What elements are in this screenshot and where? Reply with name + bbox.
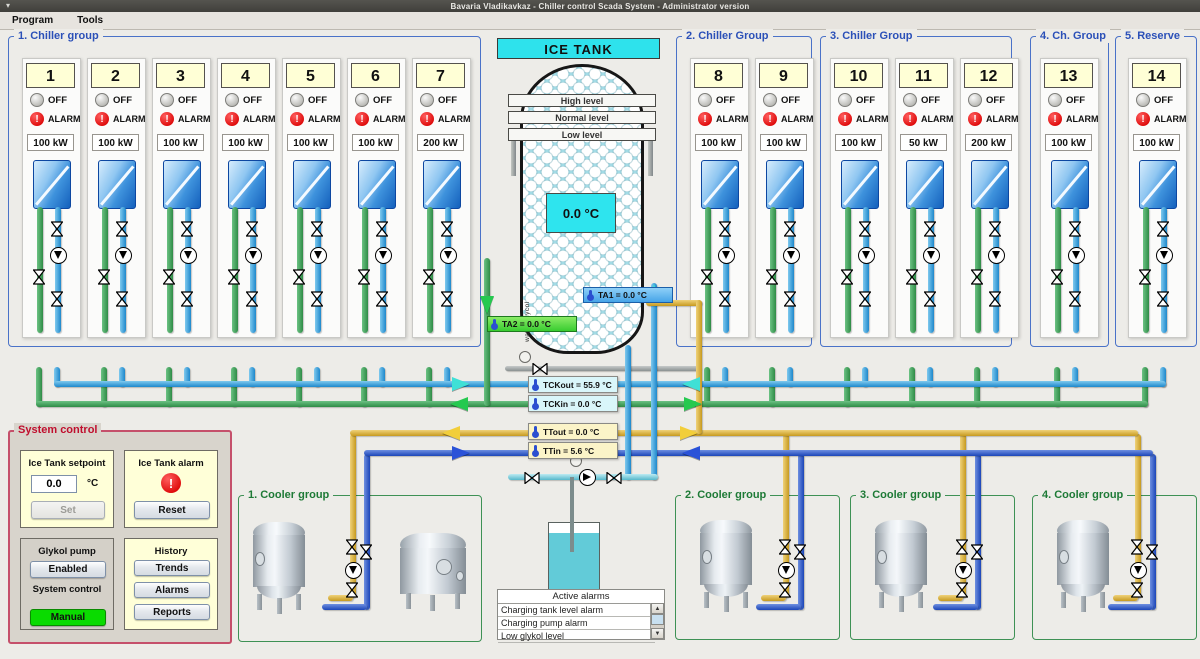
reports-button[interactable]: Reports <box>134 604 210 620</box>
pipe-segment <box>322 604 367 610</box>
sensor-ttout: TTout = 0.0 °C <box>528 423 618 440</box>
off-indicator[interactable] <box>160 93 174 107</box>
chiller-power: 50 kW <box>900 134 947 151</box>
chiller-alarm-row: !ALARM <box>225 112 276 126</box>
chiller-number[interactable]: 6 <box>351 63 400 88</box>
valve-icon <box>957 539 969 555</box>
valve-icon <box>785 221 797 237</box>
menu-bar: Program Tools <box>0 12 1200 30</box>
chiller-off-row: OFF <box>1136 93 1173 107</box>
pump-icon <box>955 562 972 579</box>
sensor-ta2-value: TA2 = 0.0 °C <box>502 319 551 329</box>
pump-icon <box>180 247 197 264</box>
pump-icon <box>1156 247 1173 264</box>
pipe-segment <box>933 604 978 610</box>
thermometer-icon <box>589 290 592 299</box>
pipe-segment <box>1150 454 1156 610</box>
off-indicator[interactable] <box>95 93 109 107</box>
flow-arrow-icon <box>452 446 470 460</box>
off-indicator[interactable] <box>225 93 239 107</box>
chiller-number[interactable]: 4 <box>221 63 270 88</box>
pump-rotor-icon <box>862 251 870 259</box>
menu-tools[interactable]: Tools <box>65 12 115 29</box>
chiller-unit-icon <box>1051 160 1089 209</box>
cooler-tank <box>1057 520 1109 612</box>
chiller-alarm-row: !ALARM <box>838 112 889 126</box>
alarm-list-item[interactable]: Low glykol level <box>498 630 655 643</box>
chiller-group-1: 1. Chiller group1OFF!ALARM100 kW2OFF!ALA… <box>8 36 481 347</box>
pump-rotor-icon <box>54 251 62 259</box>
alarm-icon: ! <box>290 112 304 126</box>
chiller-number[interactable]: 2 <box>91 63 140 88</box>
chiller-power: 100 kW <box>695 134 742 151</box>
ice-tank-title: ICE TANK <box>497 38 660 59</box>
pump-icon <box>345 562 362 579</box>
window-title: Bavaria Vladikavkaz - Chiller control Sc… <box>450 2 749 11</box>
alarm-label: ALARM <box>178 114 211 124</box>
off-indicator[interactable] <box>1048 93 1062 107</box>
setpoint-input[interactable] <box>31 475 77 493</box>
alarm-label: ALARM <box>308 114 341 124</box>
alarm-label: ALARM <box>48 114 81 124</box>
scada-main-view: Bavaria Vladikavkaz - Chiller control Sc… <box>0 0 1200 659</box>
off-indicator[interactable] <box>968 93 982 107</box>
chiller-unit-icon <box>841 160 879 209</box>
chiller-alarm-row: !ALARM <box>1136 112 1187 126</box>
scrollbar-thumb[interactable] <box>651 614 664 625</box>
sensor-ta1: TA1 = 0.0 °C <box>583 287 673 303</box>
off-indicator[interactable] <box>903 93 917 107</box>
alarm-icon: ! <box>1048 112 1062 126</box>
off-label: OFF <box>48 95 67 106</box>
off-label: OFF <box>1154 95 1173 106</box>
chiller-off-row: OFF <box>763 93 800 107</box>
chiller-column-11: 11OFF!ALARM50 kW <box>895 58 954 338</box>
off-label: OFF <box>308 95 327 106</box>
alarm-label: ALARM <box>243 114 276 124</box>
valve-icon <box>780 539 792 555</box>
off-indicator[interactable] <box>355 93 369 107</box>
tank-leg <box>455 593 460 609</box>
chiller-group-4: 4. Ch. Group13OFF!ALARM100 kW <box>1030 36 1109 347</box>
system-control-mode-title: System control <box>21 584 113 595</box>
off-indicator[interactable] <box>763 93 777 107</box>
valve-icon <box>925 291 937 307</box>
valve-icon <box>990 291 1002 307</box>
chiller-alarm-row: !ALARM <box>355 112 406 126</box>
chiller-off-row: OFF <box>968 93 1005 107</box>
tank-leg <box>406 593 411 609</box>
chiller-column-8: 8OFF!ALARM100 kW <box>690 58 749 338</box>
valve-icon <box>1147 544 1159 560</box>
tank-leg <box>430 595 435 611</box>
off-label: OFF <box>856 95 875 106</box>
alarm-icon: ! <box>838 112 852 126</box>
chiller-unit-icon <box>293 160 331 209</box>
tank-dome <box>400 533 466 549</box>
alarm-icon: ! <box>95 112 109 126</box>
off-label: OFF <box>438 95 457 106</box>
flow-arrow-icon <box>452 377 470 391</box>
pump-icon <box>1130 562 1147 579</box>
alarm-list-item[interactable]: Charging pump alarm <box>498 617 655 630</box>
cooler-tank <box>875 520 927 612</box>
tank-leg <box>899 596 904 612</box>
chiller-off-row: OFF <box>30 93 67 107</box>
scroll-up-icon[interactable]: ▲ <box>651 603 664 614</box>
valve-icon <box>442 221 454 237</box>
valve-icon <box>359 269 371 285</box>
pump-rotor-icon <box>927 251 935 259</box>
alarm-label: ALARM <box>921 114 954 124</box>
chiller-unit-icon <box>163 160 201 209</box>
alarm-icon: ! <box>420 112 434 126</box>
chiller-number[interactable]: 3 <box>156 63 205 88</box>
chiller-off-row: OFF <box>225 93 262 107</box>
pump-icon <box>923 247 940 264</box>
chiller-power: 100 kW <box>1133 134 1180 151</box>
valve-icon <box>361 544 373 560</box>
pump-rotor-icon <box>787 251 795 259</box>
tank-leg <box>918 592 923 608</box>
active-alarms-rows: Charging tank level alarmCharging pump a… <box>498 604 664 643</box>
valve-icon <box>606 471 622 483</box>
valve-icon <box>720 291 732 307</box>
cooler-group-title: 1. Cooler group <box>244 488 333 502</box>
sensor-tckin: TCKin = 0.0 °C <box>528 395 618 412</box>
valve-icon <box>767 269 779 285</box>
valve-icon <box>377 291 389 307</box>
chiller-unit-icon <box>33 160 71 209</box>
tank-body <box>400 548 466 594</box>
valve-icon <box>442 291 454 307</box>
off-indicator[interactable] <box>1136 93 1150 107</box>
tank-dome <box>875 520 927 534</box>
chiller-power: 100 kW <box>157 134 204 151</box>
alarm-icon: ! <box>355 112 369 126</box>
chiller-power: 100 kW <box>287 134 334 151</box>
chiller-number[interactable]: 14 <box>1132 63 1181 88</box>
tank-leg <box>879 592 884 608</box>
chiller-number[interactable]: 1 <box>26 63 75 88</box>
chiller-group-title: 5. Reserve <box>1121 29 1184 43</box>
alarm-icon: ! <box>763 112 777 126</box>
history-box: History Trends Alarms Reports <box>124 538 218 630</box>
alarm-icon: ! <box>225 112 239 126</box>
valve-icon <box>1132 582 1144 598</box>
chiller-column-12: 12OFF!ALARM200 kW <box>960 58 1019 338</box>
tank-dome <box>1057 520 1109 534</box>
pump-rotor-icon <box>184 251 192 259</box>
alarm-label: ALARM <box>781 114 814 124</box>
chiller-column-4: 4OFF!ALARM100 kW <box>217 58 276 338</box>
off-indicator[interactable] <box>838 93 852 107</box>
manual-mode-button[interactable]: Manual <box>30 609 106 626</box>
valve-icon <box>860 221 872 237</box>
sensor-ta1-value: TA1 = 0.0 °C <box>598 290 647 300</box>
chiller-alarm-row: !ALARM <box>903 112 954 126</box>
thermometer-icon <box>534 445 537 454</box>
high-level-bar: High level <box>508 94 656 107</box>
sensor-tckout: TCKout = 55.9 °C <box>528 376 618 393</box>
alarm-label: ALARM <box>373 114 406 124</box>
tank-leg <box>1061 592 1066 608</box>
chiller-column-13: 13OFF!ALARM100 kW <box>1040 58 1099 338</box>
chiller-power: 100 kW <box>760 134 807 151</box>
cooler-tank <box>700 520 752 612</box>
valve-icon <box>1158 291 1170 307</box>
chiller-power: 100 kW <box>352 134 399 151</box>
chiller-number[interactable]: 8 <box>694 63 743 88</box>
chiller-column-14: 14OFF!ALARM100 kW <box>1128 58 1187 338</box>
flow-arrow-icon <box>480 296 494 314</box>
pump-rotor-icon <box>959 566 967 574</box>
valve-icon <box>424 269 436 285</box>
pump-rotor-icon <box>249 251 257 259</box>
cooler-group-title: 2. Cooler group <box>681 488 770 502</box>
off-indicator[interactable] <box>30 93 44 107</box>
tank-leg <box>296 594 301 610</box>
chiller-column-9: 9OFF!ALARM100 kW <box>755 58 814 338</box>
pump-rotor-icon <box>1160 251 1168 259</box>
ice-tank-temperature: 0.0 °C <box>546 193 616 233</box>
off-indicator[interactable] <box>290 93 304 107</box>
pump-enabled-button[interactable]: Enabled <box>30 561 106 578</box>
valve-icon <box>925 221 937 237</box>
pump-icon <box>783 247 800 264</box>
sensor-ttin: TTin = 5.6 °C <box>528 442 618 459</box>
off-indicator[interactable] <box>420 93 434 107</box>
valve-icon <box>957 582 969 598</box>
pump-icon <box>718 247 735 264</box>
alarm-label: ALARM <box>856 114 889 124</box>
valve-icon <box>182 291 194 307</box>
sensor-ttout-value: TTout = 0.0 °C <box>543 427 599 437</box>
window-titlebar: Bavaria Vladikavkaz - Chiller control Sc… <box>0 0 1200 12</box>
tank-manway-icon <box>1059 550 1069 564</box>
low-level-bar: Low level <box>508 128 656 141</box>
system-control-panel: System control Ice Tank setpoint °C Set … <box>8 430 232 644</box>
chiller-alarm-row: !ALARM <box>290 112 341 126</box>
off-label: OFF <box>373 95 392 106</box>
pump-rotor-icon <box>314 251 322 259</box>
tank-leg <box>743 592 748 608</box>
history-title: History <box>125 546 217 557</box>
valve-icon <box>1158 221 1170 237</box>
chiller-alarm-row: !ALARM <box>1048 112 1099 126</box>
valve-icon <box>532 362 548 374</box>
chiller-unit-icon <box>971 160 1009 209</box>
valve-icon <box>347 539 359 555</box>
chiller-group-title: 1. Chiller group <box>14 29 103 43</box>
charging-dip-tube <box>570 477 574 552</box>
tank-leg <box>257 594 262 610</box>
tank-alarm-box: Ice Tank alarm ! Reset <box>124 450 218 528</box>
active-alarms-header: Active alarms <box>498 590 664 604</box>
chiller-alarm-row: !ALARM <box>698 112 749 126</box>
menu-program[interactable]: Program <box>0 12 65 29</box>
reset-button[interactable]: Reset <box>134 501 210 519</box>
chiller-unit-icon <box>766 160 804 209</box>
alarm-label: ALARM <box>1154 114 1187 124</box>
chiller-alarm-row: !ALARM <box>95 112 146 126</box>
pump-icon <box>115 247 132 264</box>
valve-icon <box>785 291 797 307</box>
sensor-ta2: TA2 = 0.0 °C <box>487 316 577 332</box>
valve-icon <box>247 291 259 307</box>
chiller-number[interactable]: 5 <box>286 63 335 88</box>
off-label: OFF <box>986 95 1005 106</box>
chiller-unit-icon <box>358 160 396 209</box>
chiller-number[interactable]: 13 <box>1044 63 1093 88</box>
alarm-icon: ! <box>161 473 181 493</box>
chiller-unit-icon <box>423 160 461 209</box>
pump-rotor-icon <box>782 566 790 574</box>
cooler-group-title: 3. Cooler group <box>856 488 945 502</box>
valve-icon <box>377 221 389 237</box>
chiller-off-row: OFF <box>95 93 132 107</box>
glykol-pump-title: Glykol pump <box>21 546 113 557</box>
chiller-group-5: 5. Reserve14OFF!ALARM100 kW <box>1115 36 1197 347</box>
pump-rotor-icon <box>583 473 591 481</box>
chiller-off-row: OFF <box>420 93 457 107</box>
chiller-off-row: OFF <box>903 93 940 107</box>
chiller-number[interactable]: 12 <box>964 63 1013 88</box>
valve-icon <box>52 221 64 237</box>
chiller-number[interactable]: 7 <box>416 63 465 88</box>
chiller-number[interactable]: 11 <box>899 63 948 88</box>
chiller-power: 100 kW <box>835 134 882 151</box>
flow-arrow-icon <box>684 397 702 411</box>
valve-icon <box>34 269 46 285</box>
chiller-column-6: 6OFF!ALARM100 kW <box>347 58 406 338</box>
chiller-alarm-row: !ALARM <box>968 112 1019 126</box>
tank-manway-icon <box>456 571 464 581</box>
pump-icon <box>245 247 262 264</box>
chiller-alarm-row: !ALARM <box>420 112 471 126</box>
pipe-segment <box>651 283 657 480</box>
valve-icon <box>1140 269 1152 285</box>
chiller-off-row: OFF <box>160 93 197 107</box>
valve-icon <box>117 291 129 307</box>
tank-leg <box>1081 596 1086 612</box>
flow-arrow-icon <box>450 397 468 411</box>
valve-icon <box>52 291 64 307</box>
chiller-off-row: OFF <box>355 93 392 107</box>
chiller-unit-icon <box>1139 160 1177 209</box>
alarm-list-item[interactable]: Charging tank level alarm <box>498 604 655 617</box>
chiller-alarm-row: !ALARM <box>30 112 81 126</box>
valve-icon <box>860 291 872 307</box>
valve-icon <box>1070 221 1082 237</box>
flow-arrow-icon <box>682 377 700 391</box>
chiller-number[interactable]: 9 <box>759 63 808 88</box>
pump-rotor-icon <box>992 251 1000 259</box>
off-label: OFF <box>921 95 940 106</box>
set-button[interactable]: Set <box>31 501 105 519</box>
thermometer-icon <box>534 379 537 388</box>
tank-leg <box>704 592 709 608</box>
glykol-pump-box: Glykol pump Enabled System control Manua… <box>20 538 114 630</box>
valve-icon <box>294 269 306 285</box>
valve-icon <box>702 269 714 285</box>
alarms-scrollbar[interactable]: ▲ ▼ <box>650 603 664 639</box>
alarm-icon: ! <box>698 112 712 126</box>
chiller-power: 100 kW <box>27 134 74 151</box>
chiller-power: 100 kW <box>222 134 269 151</box>
chiller-group-title: 4. Ch. Group <box>1036 29 1110 43</box>
chiller-column-2: 2OFF!ALARM100 kW <box>87 58 146 338</box>
alarm-icon: ! <box>160 112 174 126</box>
valve-icon <box>247 221 259 237</box>
pipe-segment <box>625 345 631 480</box>
valve-icon <box>229 269 241 285</box>
scroll-down-icon[interactable]: ▼ <box>651 628 664 639</box>
tank-leg <box>277 598 282 614</box>
active-alarms-list: Active alarms Charging tank level alarmC… <box>497 589 665 640</box>
chiller-number[interactable]: 10 <box>834 63 883 88</box>
level-sensor-rod <box>648 138 653 176</box>
chiller-off-row: OFF <box>290 93 327 107</box>
pump-rotor-icon <box>722 251 730 259</box>
level-sensor-rod <box>511 138 516 176</box>
window-menu-icon[interactable] <box>6 0 10 12</box>
setpoint-title: Ice Tank setpoint <box>21 458 113 469</box>
valve-icon <box>99 269 111 285</box>
valve-icon <box>795 544 807 560</box>
chiller-power: 200 kW <box>965 134 1012 151</box>
tank-dome <box>253 522 305 536</box>
chiller-column-10: 10OFF!ALARM100 kW <box>830 58 889 338</box>
thermometer-icon <box>534 398 537 407</box>
tank-manway-icon <box>877 550 887 564</box>
pump-icon <box>1068 247 1085 264</box>
pipe-segment <box>798 454 804 610</box>
cooler-group-title: 4. Cooler group <box>1038 488 1127 502</box>
flow-arrow-icon <box>682 446 700 460</box>
sensor-tckin-value: TCKin = 0.0 °C <box>543 399 601 409</box>
off-label: OFF <box>113 95 132 106</box>
pipe-segment <box>1108 604 1153 610</box>
pipe-segment <box>756 604 801 610</box>
alarm-label: ALARM <box>438 114 471 124</box>
alarm-icon: ! <box>968 112 982 126</box>
valve-icon <box>842 269 854 285</box>
cooler-tank <box>253 522 305 614</box>
chiller-off-row: OFF <box>838 93 875 107</box>
chiller-column-3: 3OFF!ALARM100 kW <box>152 58 211 338</box>
valve-icon <box>117 221 129 237</box>
valve-icon <box>990 221 1002 237</box>
tank-leg <box>1100 592 1105 608</box>
valve-icon <box>720 221 732 237</box>
sensor-tckout-value: TCKout = 55.9 °C <box>543 380 612 390</box>
pump-rotor-icon <box>349 566 357 574</box>
valve-icon <box>312 291 324 307</box>
alarms-button[interactable]: Alarms <box>134 582 210 598</box>
trends-button[interactable]: Trends <box>134 560 210 576</box>
pipe-segment <box>484 258 490 406</box>
chiller-group-title: 3. Chiller Group <box>826 29 917 43</box>
off-label: OFF <box>1066 95 1085 106</box>
valve-icon <box>182 221 194 237</box>
chiller-power: 100 kW <box>1045 134 1092 151</box>
sensor-circle-icon <box>519 351 531 363</box>
chiller-group-title: 2. Chiller Group <box>682 29 773 43</box>
off-indicator[interactable] <box>698 93 712 107</box>
chiller-off-row: OFF <box>1048 93 1085 107</box>
tank-dome <box>700 520 752 534</box>
